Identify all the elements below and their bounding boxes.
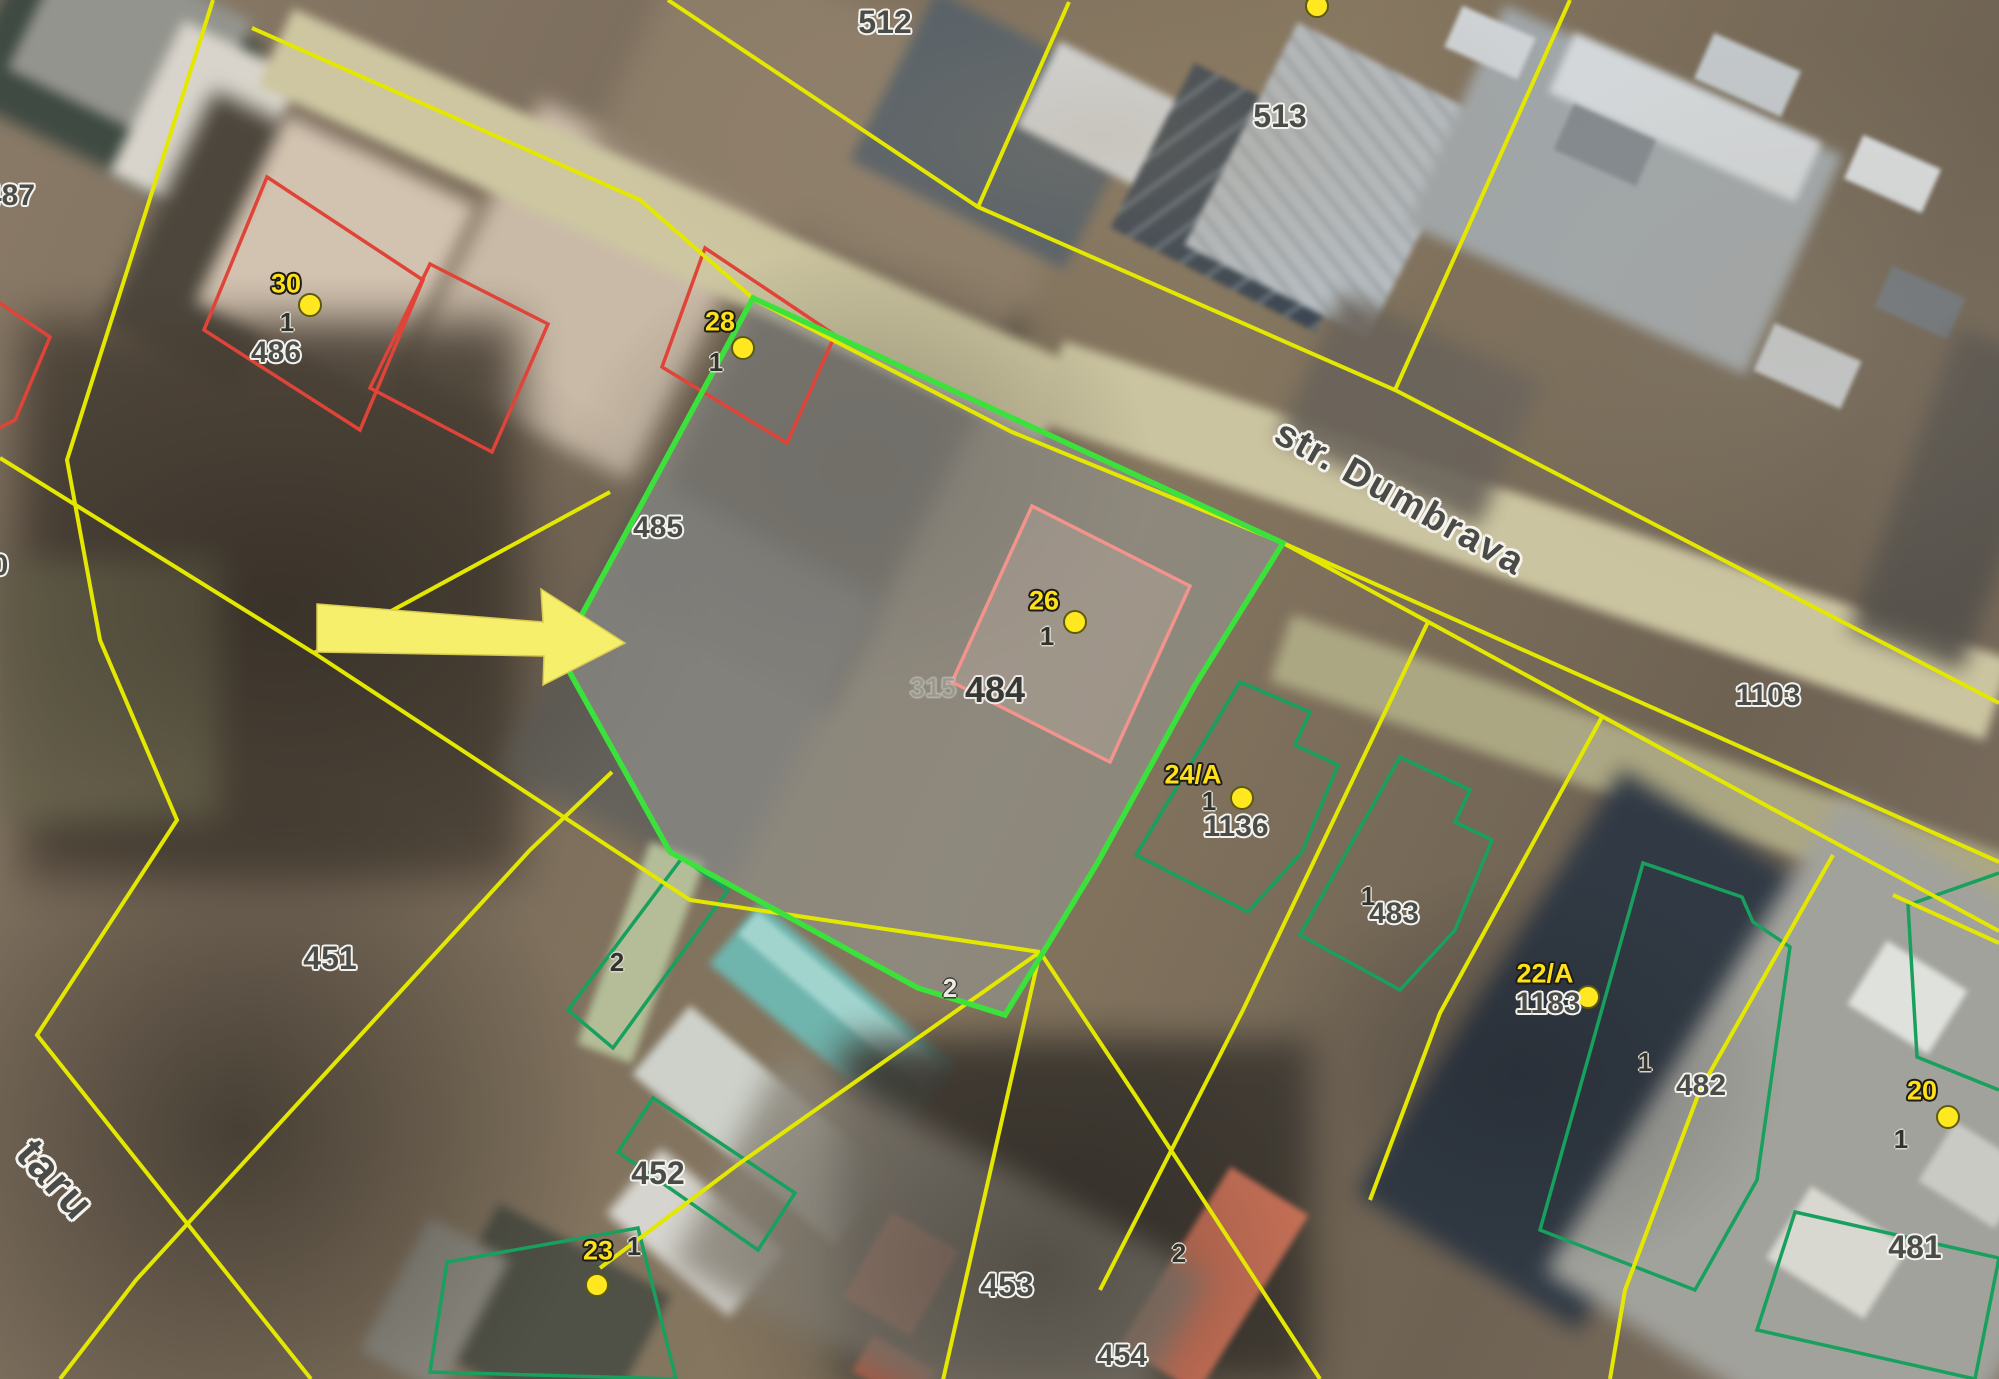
map-canvas[interactable]: 4874864855125130315484110311364831183482…	[0, 0, 1999, 1379]
terrain-patch	[0, 560, 220, 820]
